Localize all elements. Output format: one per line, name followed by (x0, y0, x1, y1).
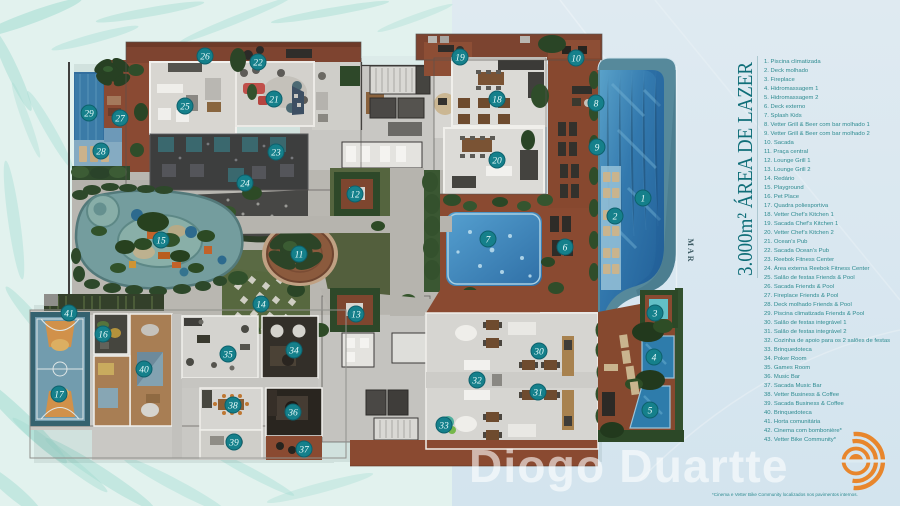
svg-text:9: 9 (595, 143, 600, 153)
svg-text:17. Quadra poliesportiva: 17. Quadra poliesportiva (764, 203, 829, 209)
svg-text:37. Sacada Music Bar: 37. Sacada Music Bar (764, 383, 822, 389)
svg-text:6: 6 (563, 243, 568, 253)
svg-text:18. Vetter Chef’s Kitchen 1: 18. Vetter Chef’s Kitchen 1 (764, 212, 834, 218)
svg-text:12: 12 (350, 190, 360, 200)
svg-text:MAR: MAR (686, 238, 695, 263)
svg-text:26. Sacada Friends & Pool: 26. Sacada Friends & Pool (764, 284, 834, 290)
svg-text:13: 13 (351, 310, 361, 320)
svg-text:35: 35 (222, 350, 233, 360)
svg-text:19: 19 (455, 53, 465, 63)
svg-text:8: 8 (594, 99, 599, 109)
svg-text:39. Sacada Business & Coffee: 39. Sacada Business & Coffee (764, 401, 845, 407)
svg-text:27: 27 (115, 114, 126, 124)
svg-text:5: 5 (648, 406, 653, 416)
svg-text:1. Piscina climatizada: 1. Piscina climatizada (764, 59, 821, 65)
svg-text:8. Vetter Grill & Beer com bar: 8. Vetter Grill & Beer com bar molhado 1 (764, 122, 870, 128)
svg-text:28: 28 (96, 147, 106, 157)
svg-text:21. Ocean’s Pub: 21. Ocean’s Pub (764, 239, 808, 245)
svg-text:2. Deck molhado: 2. Deck molhado (764, 68, 809, 74)
svg-text:31: 31 (532, 388, 543, 398)
svg-text:34. Poker Room: 34. Poker Room (764, 356, 807, 362)
svg-text:4: 4 (652, 353, 657, 363)
svg-text:13. Lounge Grill 2: 13. Lounge Grill 2 (764, 167, 811, 173)
svg-text:19. Sacada Chef’s Kitchen 1: 19. Sacada Chef’s Kitchen 1 (764, 221, 838, 227)
svg-text:22: 22 (253, 58, 263, 68)
svg-text:39: 39 (228, 438, 239, 448)
svg-text:25: 25 (180, 102, 190, 112)
svg-text:16. Pet Place: 16. Pet Place (764, 194, 800, 200)
svg-text:24. Área externa Reebok Fitnes: 24. Área externa Reebok Fitness Center (764, 265, 869, 272)
svg-text:18: 18 (492, 95, 502, 105)
svg-text:21: 21 (269, 95, 279, 105)
svg-text:36: 36 (287, 408, 298, 418)
svg-text:29: 29 (84, 109, 94, 119)
svg-text:7. Splash Kids: 7. Splash Kids (764, 113, 802, 119)
svg-text:6. Deck externo: 6. Deck externo (764, 104, 806, 110)
svg-text:*Cinema e Vetter Bike Communit: *Cinema e Vetter Bike Community localiza… (712, 492, 858, 497)
svg-text:2: 2 (613, 212, 618, 222)
svg-text:14. Redário: 14. Redário (764, 176, 795, 182)
svg-text:3.000m² ÁREA DE LAZER: 3.000m² ÁREA DE LAZER (733, 62, 757, 276)
svg-text:35. Games Room: 35. Games Room (764, 365, 810, 371)
svg-text:5. Hidromassagem 2: 5. Hidromassagem 2 (764, 95, 818, 101)
svg-text:41. Horta comunitária: 41. Horta comunitária (764, 419, 821, 425)
svg-text:20: 20 (492, 156, 502, 166)
svg-text:3: 3 (652, 309, 658, 319)
svg-text:40: 40 (139, 365, 149, 375)
svg-text:15: 15 (156, 236, 166, 246)
svg-text:38. Vetter Business & Coffee: 38. Vetter Business & Coffee (764, 392, 840, 398)
svg-text:30. Salão de festas integrável: 30. Salão de festas integrável 1 (764, 320, 847, 326)
svg-text:32. Cozinha de apoio para os 2: 32. Cozinha de apoio para os 2 salões de… (764, 338, 890, 344)
svg-text:15. Playground: 15. Playground (764, 185, 804, 191)
svg-text:31. Salão de festas integrável: 31. Salão de festas integrável 2 (764, 329, 847, 335)
svg-text:29. Piscina climatizada Friend: 29. Piscina climatizada Friends & Pool (764, 311, 864, 317)
svg-text:26: 26 (200, 52, 210, 62)
svg-text:11. Praça central: 11. Praça central (764, 149, 808, 155)
svg-text:33: 33 (438, 421, 449, 431)
svg-text:23. Reebok Fitness Center: 23. Reebok Fitness Center (764, 257, 834, 263)
svg-text:14: 14 (256, 300, 266, 310)
svg-text:27. Fireplace Friends & Pool: 27. Fireplace Friends & Pool (764, 293, 838, 299)
svg-text:10. Sacada: 10. Sacada (764, 140, 795, 146)
svg-text:3. Fireplace: 3. Fireplace (764, 77, 796, 83)
svg-text:24: 24 (240, 179, 250, 189)
svg-text:Diogo Duartte: Diogo Duartte (469, 440, 789, 492)
svg-text:9. Vetter Grill & Beer com bar: 9. Vetter Grill & Beer com bar molhado 2 (764, 131, 870, 137)
svg-text:33. Brinquedoteca: 33. Brinquedoteca (764, 347, 813, 353)
svg-text:32: 32 (471, 376, 482, 386)
svg-text:12. Lounge Grill 1: 12. Lounge Grill 1 (764, 158, 811, 164)
svg-text:34: 34 (288, 346, 299, 356)
svg-text:16: 16 (98, 330, 108, 340)
svg-text:41: 41 (64, 309, 74, 319)
svg-text:11: 11 (295, 250, 304, 260)
svg-text:10: 10 (571, 54, 581, 64)
svg-text:42. Cinema com bombonière*: 42. Cinema com bombonière* (764, 428, 843, 434)
svg-text:1: 1 (641, 194, 646, 204)
svg-text:23: 23 (271, 148, 281, 158)
svg-text:40. Brinquedoteca: 40. Brinquedoteca (764, 410, 813, 416)
svg-text:36. Music Bar: 36. Music Bar (764, 374, 800, 380)
svg-text:37: 37 (298, 445, 310, 455)
svg-text:4. Hidromassagem 1: 4. Hidromassagem 1 (764, 86, 818, 92)
svg-text:25. Salão de festas Friends &: 25. Salão de festas Friends & Pool (764, 275, 855, 281)
svg-text:17: 17 (54, 390, 65, 400)
svg-text:20. Vetter Chef’s Kitchen 2: 20. Vetter Chef’s Kitchen 2 (764, 230, 834, 236)
svg-text:28. Deck molhado Friends & Poo: 28. Deck molhado Friends & Pool (764, 302, 852, 308)
svg-text:22. Sacada Ocean’s Pub: 22. Sacada Ocean’s Pub (764, 248, 830, 254)
svg-text:30: 30 (533, 347, 544, 357)
svg-text:38: 38 (227, 401, 238, 411)
